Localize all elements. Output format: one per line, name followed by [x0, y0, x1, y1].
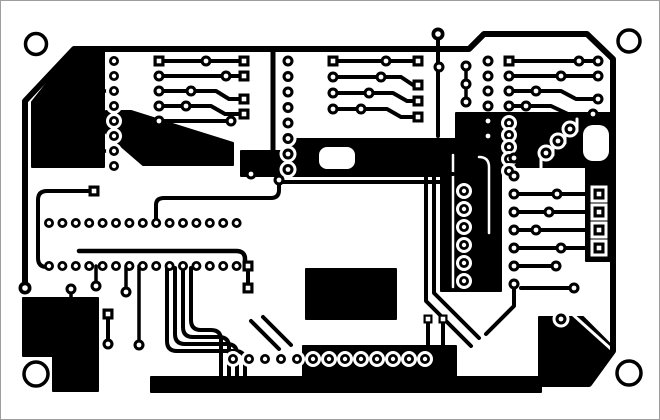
pad-drill-hole: [154, 221, 158, 225]
pad-drill-hole: [507, 133, 511, 137]
pad-drill-hole: [462, 279, 466, 283]
pad-drill-hole: [167, 221, 171, 225]
pad-drill-hole: [47, 221, 51, 225]
mounting-hole: [24, 362, 48, 386]
pad-drill-hole: [416, 99, 421, 104]
pad-drill-hole: [100, 264, 104, 268]
pad-drill-hole: [596, 74, 601, 79]
pad-drill-hole: [74, 221, 78, 225]
pad-drill-hole: [194, 264, 198, 268]
copper-trace: [191, 268, 221, 384]
pad-drill-hole: [486, 89, 491, 94]
pad-drill-hole: [246, 286, 251, 291]
pad-drill-hole: [555, 192, 560, 197]
pad-drill-hole: [87, 264, 91, 268]
pad-drill-hole: [327, 357, 331, 361]
pad-drill-hole: [416, 115, 421, 120]
pad-drill-hole: [157, 59, 162, 64]
pad-drill-hole: [416, 83, 421, 88]
pad-drill-hole: [507, 121, 511, 125]
mounting-hole: [618, 30, 640, 52]
copper-trace: [159, 91, 244, 99]
pad-drill-hole: [547, 210, 552, 215]
pad-drill-hole: [486, 74, 491, 79]
pad-drill-hole: [112, 164, 116, 168]
pad-drill-hole: [597, 228, 602, 233]
pad-drill-hole: [512, 282, 517, 287]
pad-drill-hole: [141, 221, 145, 225]
pad-drill-hole: [229, 119, 234, 124]
pad-drill-hole: [486, 134, 491, 139]
pad-drill-hole: [507, 89, 512, 94]
pad-drill-hole: [416, 59, 421, 64]
pad-drill-hole: [407, 357, 411, 361]
pad-drill-hole: [462, 243, 466, 247]
pad-drill-hole: [242, 74, 247, 79]
pad-drill-hole: [249, 172, 254, 177]
copper-trace: [156, 182, 279, 225]
pad-drill-hole: [286, 121, 291, 126]
pad-drill-hole: [384, 59, 389, 64]
pad-drill-hole: [157, 89, 162, 94]
pad-drill-hole: [554, 264, 559, 269]
pad-drill-hole: [87, 221, 91, 225]
pad-drill-hole: [331, 91, 336, 96]
pad-drill-hole: [234, 221, 238, 225]
pcb-screenshot-frame: [0, 0, 660, 420]
pad-drill-hole: [154, 264, 158, 268]
pad-drill-hole: [60, 264, 64, 268]
pad-drill-hole: [524, 104, 529, 109]
copper-fill: [441, 149, 501, 291]
fill-cutout: [319, 147, 355, 169]
pad-drill-hole: [295, 357, 299, 361]
pad-drill-hole: [100, 221, 104, 225]
pad-drill-hole: [94, 284, 99, 289]
pad-drill-hole: [221, 264, 225, 268]
pad-drill-hole: [112, 134, 116, 138]
pad-drill-hole: [114, 221, 118, 225]
pad-drill-hole: [127, 221, 131, 225]
pad-drill-hole: [512, 246, 517, 251]
pad-drill-hole: [224, 74, 229, 79]
pad-drill-hole: [512, 156, 517, 161]
pad-drill-hole: [167, 264, 171, 268]
pad-drill-hole: [343, 357, 347, 361]
pad-drill-hole: [577, 59, 582, 64]
pad-drill-hole: [114, 264, 118, 268]
pad-drill-hole: [568, 127, 573, 132]
pad-drill-hole: [157, 119, 162, 124]
pcb-layout-diagram: [1, 1, 660, 420]
pad-drill-hole: [597, 192, 602, 197]
pad-drill-hole: [597, 246, 602, 251]
pad-drill-hole: [591, 112, 596, 117]
pad-drill-hole: [92, 189, 97, 194]
pad-drill-hole: [596, 59, 601, 64]
pad-drill-hole: [441, 317, 446, 322]
pad-drill-hole: [464, 64, 469, 69]
pad-drill-hole: [184, 104, 189, 109]
copper-fill: [32, 49, 104, 167]
pad-drill-hole: [286, 167, 291, 172]
pad-drill-hole: [286, 105, 291, 110]
pad-drill-hole: [462, 225, 466, 229]
pad-drill-hole: [47, 264, 51, 268]
pad-drill-hole: [507, 145, 511, 149]
pad-drill-hole: [181, 221, 185, 225]
pad-drill-hole: [69, 287, 74, 292]
pad-drill-hole: [22, 285, 28, 291]
pad-drill-hole: [157, 74, 162, 79]
pad-drill-hole: [242, 112, 247, 117]
pad-drill-hole: [462, 261, 466, 265]
pad-drill-hole: [559, 246, 564, 251]
pad-drill-hole: [247, 357, 251, 361]
pad-drill-hole: [464, 82, 469, 87]
pad-drill-hole: [435, 31, 441, 37]
pad-drill-hole: [486, 104, 491, 109]
pad-drill-hole: [596, 97, 601, 102]
pad-drill-hole: [423, 357, 427, 361]
pad-drill-hole: [507, 104, 512, 109]
pad-drill-hole: [512, 192, 517, 197]
pad-drill-hole: [286, 90, 291, 95]
pad-drill-hole: [391, 357, 395, 361]
pad-drill-hole: [559, 317, 564, 322]
pad-drill-hole: [137, 343, 142, 348]
pad-drill-hole: [106, 312, 111, 317]
pad-drill-hole: [234, 264, 238, 268]
pad-drill-hole: [462, 207, 466, 211]
pad-drill-hole: [426, 317, 431, 322]
pad-drill-hole: [437, 65, 442, 70]
pad-drill-hole: [242, 59, 247, 64]
pad-drill-hole: [277, 178, 282, 183]
pad-drill-hole: [242, 97, 247, 102]
pad-drill-hole: [572, 286, 577, 291]
copper-trace: [333, 77, 418, 85]
copper-fill: [539, 317, 613, 381]
pad-drill-hole: [359, 357, 363, 361]
pad-drill-hole: [512, 210, 517, 215]
pad-drill-hole: [74, 264, 78, 268]
pad-drill-hole: [534, 228, 539, 233]
pad-drill-hole: [124, 290, 129, 295]
pad-drill-hole: [221, 221, 225, 225]
pad-drill-hole: [359, 107, 364, 112]
copper-trace: [333, 109, 418, 117]
fill-cutout: [583, 125, 609, 161]
pad-drill-hole: [375, 357, 379, 361]
pad-drill-hole: [556, 139, 561, 144]
pad-drill-hole: [512, 228, 517, 233]
pad-drill-hole: [512, 174, 517, 179]
pad-drill-hole: [597, 210, 602, 215]
pad-drill-hole: [507, 59, 512, 64]
pad-drill-hole: [112, 104, 116, 108]
pad-drill-hole: [331, 107, 336, 112]
mounting-hole: [26, 34, 47, 55]
pad-drill-hole: [246, 264, 251, 269]
pad-drill-hole: [507, 74, 512, 79]
copper-trace: [159, 106, 244, 114]
copper-trace: [333, 93, 418, 101]
pad-drill-hole: [141, 264, 145, 268]
pad-drill-hole: [286, 136, 291, 141]
pad-drill-hole: [331, 59, 336, 64]
pad-drill-hole: [279, 357, 283, 361]
pad-drill-hole: [486, 119, 491, 124]
pad-drill-hole: [559, 74, 564, 79]
pad-drill-hole: [204, 59, 209, 64]
pad-drill-hole: [208, 221, 212, 225]
copper-trace: [509, 91, 598, 99]
pad-drill-hole: [286, 152, 291, 157]
pad-drill-hole: [112, 59, 116, 63]
copper-trace: [263, 317, 291, 345]
pad-drill-hole: [112, 119, 116, 123]
pad-drill-hole: [486, 59, 491, 64]
copper-fill: [306, 269, 396, 319]
pad-drill-hole: [311, 357, 315, 361]
pad-drill-hole: [112, 149, 116, 153]
pad-drill-hole: [189, 89, 194, 94]
pad-drill-hole: [231, 357, 235, 361]
pad-drill-hole: [112, 89, 116, 93]
pad-drill-hole: [462, 189, 466, 193]
pad-drill-hole: [208, 264, 212, 268]
pad-drill-hole: [60, 221, 64, 225]
pad-drill-hole: [286, 59, 291, 64]
copper-trace: [251, 321, 279, 349]
pad-drill-hole: [544, 151, 549, 156]
pad-drill-hole: [157, 104, 162, 109]
pad-drill-hole: [127, 264, 131, 268]
pad-drill-hole: [181, 264, 185, 268]
pad-drill-hole: [379, 75, 384, 80]
pad-drill-hole: [367, 91, 372, 96]
copper-trace: [38, 191, 89, 267]
pad-drill-hole: [512, 264, 517, 269]
mounting-hole: [617, 361, 641, 385]
pad-drill-hole: [331, 75, 336, 80]
pad-drill-hole: [263, 357, 267, 361]
pad-drill-hole: [106, 342, 111, 347]
pad-drill-hole: [534, 89, 539, 94]
pad-drill-hole: [286, 74, 291, 79]
pad-drill-hole: [112, 74, 116, 78]
pad-drill-hole: [464, 100, 469, 105]
copper-fill: [291, 139, 456, 176]
pad-drill-hole: [194, 221, 198, 225]
